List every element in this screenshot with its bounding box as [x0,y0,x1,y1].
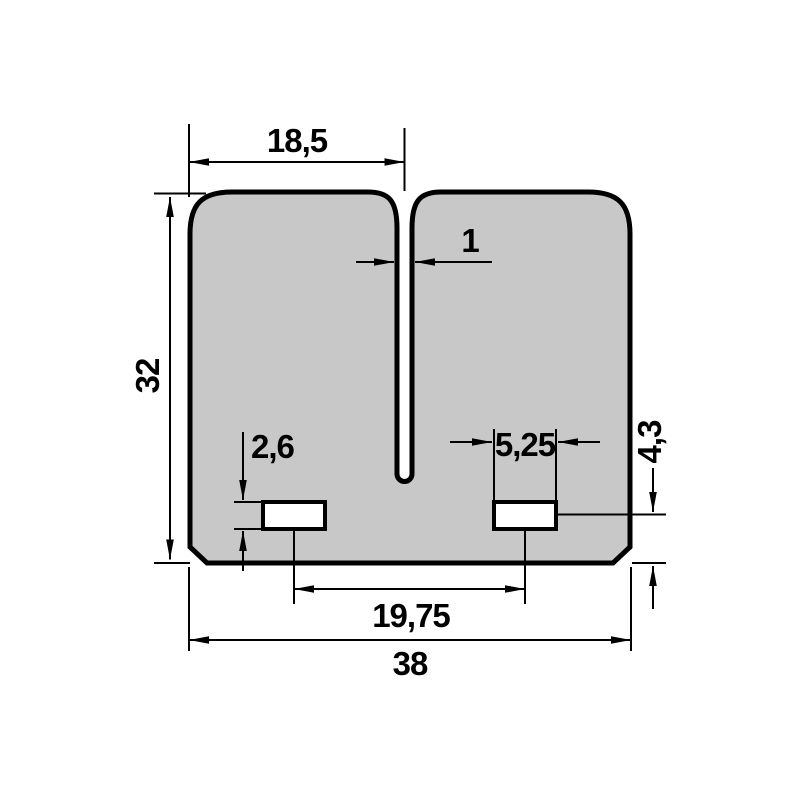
dim-label-hole-center-spacing: 19,75 [372,597,450,634]
right-hole [494,502,556,529]
dim-label-petal-width: 18,5 [267,122,328,159]
dim-label-hole-width: 5,25 [495,426,556,463]
part-outline [190,192,630,563]
dim-label-hole-height: 2,6 [251,428,295,465]
dim-label-hole-center-to-bottom: 4,3 [631,420,668,464]
dim-petal-width: 18,5 [189,122,405,197]
drawing-canvas: 18,5 1 32 2,6 5,25 4,3 [0,0,800,800]
dim-label-slot-width: 1 [461,222,479,259]
technical-drawing: 18,5 1 32 2,6 5,25 4,3 [0,0,800,800]
dim-label-total-width: 38 [393,645,428,682]
left-hole [263,502,325,529]
dim-label-total-height: 32 [129,358,166,393]
